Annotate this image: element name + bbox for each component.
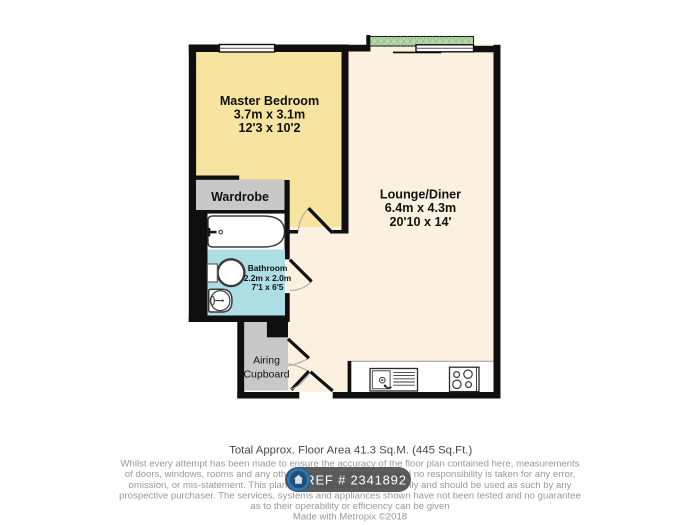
svg-text:Lounge/Diner: Lounge/Diner [380,187,461,201]
svg-text:REF # 2341892: REF # 2341892 [305,472,406,487]
svg-text:12'3 x 10'2: 12'3 x 10'2 [238,121,300,135]
svg-text:Cupboard: Cupboard [243,369,289,381]
svg-text:Total Approx. Floor Area 41.3: Total Approx. Floor Area 41.3 Sq.M. (445… [229,445,472,457]
svg-text:20'10 x 14': 20'10 x 14' [389,215,451,229]
svg-text:3.7m x 3.1m: 3.7m x 3.1m [234,107,305,121]
svg-text:Master Bedroom: Master Bedroom [220,94,319,108]
svg-text:Made with Metropix ©2018: Made with Metropix ©2018 [293,512,407,523]
svg-text:prospective purchaser. The ser: prospective purchaser. The services, sys… [119,491,581,502]
svg-text:as to their operability or eff: as to their operability or efficiency ca… [250,501,449,512]
svg-text:Airing: Airing [253,355,280,367]
svg-text:6.4m x 4.3m: 6.4m x 4.3m [385,201,456,215]
svg-text:7'1 x 6'5: 7'1 x 6'5 [252,282,284,292]
svg-text:Bathroom: Bathroom [248,263,288,273]
svg-text:Wardrobe: Wardrobe [211,190,269,204]
